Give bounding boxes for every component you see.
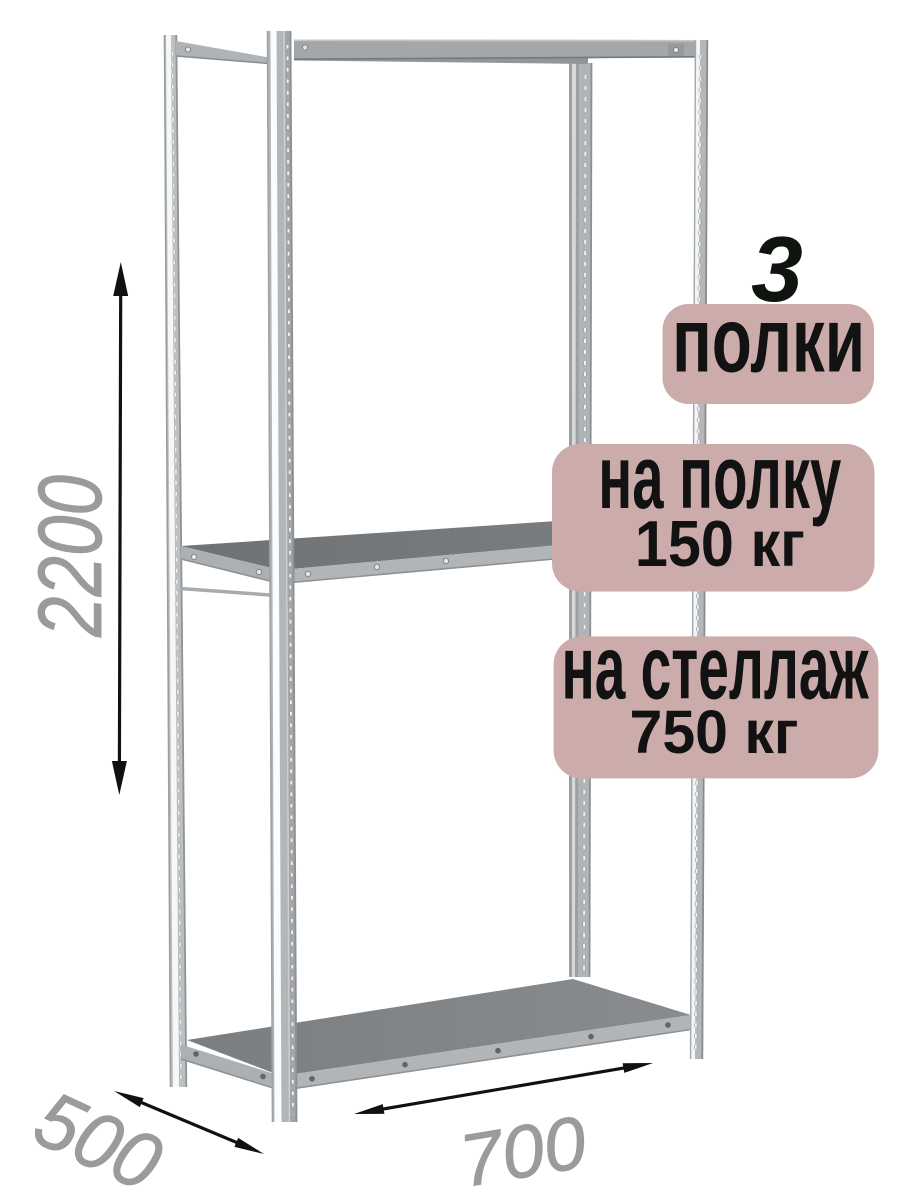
svg-text:500: 500 <box>22 1074 175 1200</box>
svg-text:750 кг: 750 кг <box>630 698 799 766</box>
svg-text:полки: полки <box>672 290 865 392</box>
svg-text:700: 700 <box>454 1100 592 1200</box>
svg-text:150 кг: 150 кг <box>635 508 805 580</box>
svg-text:2200: 2200 <box>21 475 121 638</box>
